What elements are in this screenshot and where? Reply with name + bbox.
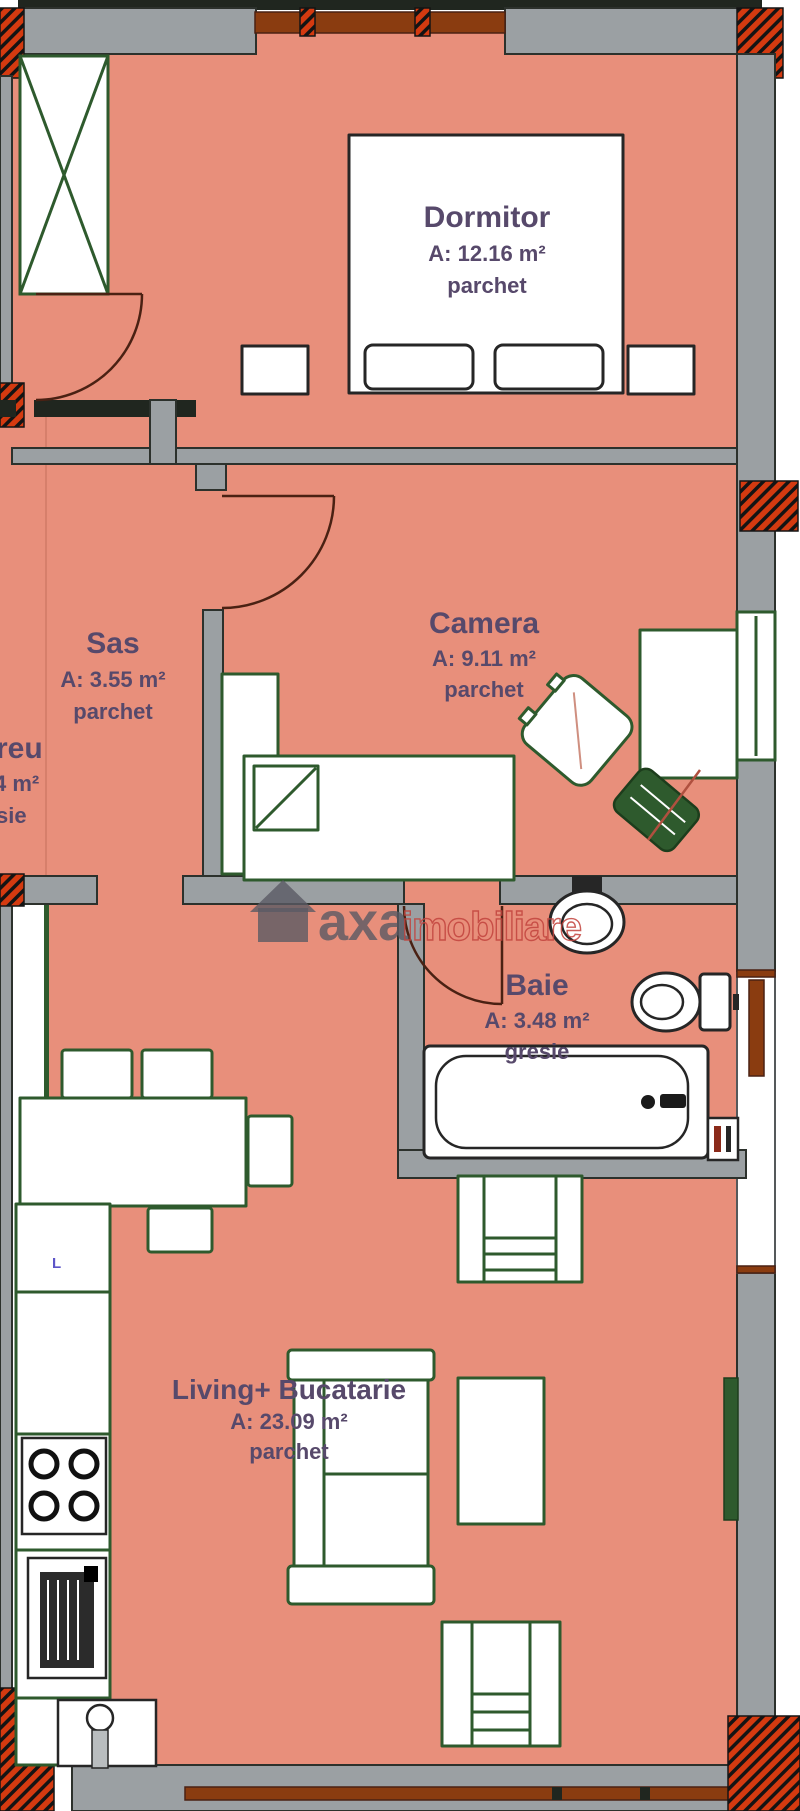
window-baie-sill-top: [737, 970, 775, 977]
wall-pier-camera-door: [196, 464, 226, 490]
toilet-tank: [700, 974, 730, 1030]
nightstand-right: [628, 346, 694, 394]
baie-name: Baie: [505, 969, 568, 1002]
bathtub-drain: [641, 1095, 655, 1109]
sofa-cushion-2: [324, 1474, 428, 1566]
partial-room-floor: sie: [0, 803, 27, 828]
dining-chair-right: [248, 1116, 292, 1186]
dining-chair-top-2: [142, 1050, 212, 1098]
chair3-arm-left: [458, 1176, 484, 1282]
kitchen-marker-label: L: [52, 1255, 61, 1272]
dining-table: [20, 1098, 246, 1206]
brick-corner-bottom-right: [728, 1716, 800, 1811]
brick-pier-1: [300, 8, 315, 36]
washer-mark-1: [714, 1126, 721, 1152]
partial-room-name: reu: [0, 732, 43, 765]
heater-knob: [84, 1566, 98, 1582]
right-wall: [737, 54, 775, 1765]
chair3-seat: [484, 1176, 556, 1282]
sofa-back: [294, 1380, 324, 1566]
dormitor-floor: parchet: [447, 273, 527, 298]
living-area: A: 23.09 m²: [230, 1409, 347, 1434]
coffee-table: [458, 1378, 544, 1524]
dining-chair-bottom: [148, 1208, 212, 1252]
terrace-strip-bottom: [185, 1787, 733, 1800]
washer-box: [708, 1118, 738, 1160]
bottom-strip-tick-1: [552, 1787, 562, 1800]
chair3-arm-right: [556, 1176, 582, 1282]
top-wall-left: [22, 8, 256, 54]
wall-sas-camera-divider: [203, 610, 223, 888]
living-floor: parchet: [249, 1439, 329, 1464]
armchair2-seat: [472, 1622, 530, 1746]
toilet-wall-tick: [733, 994, 739, 1010]
washer-mark-2: [726, 1126, 731, 1152]
baie-floor: gresie: [505, 1039, 570, 1064]
chair-by-bath-wall: [458, 1176, 582, 1282]
kitchen-sink-faucet-head: [87, 1705, 113, 1731]
armchair2-arm-right: [530, 1622, 560, 1746]
pillow-right: [495, 345, 603, 389]
living-name: Living+ Bucatarie: [172, 1374, 406, 1405]
top-wall-right: [505, 8, 739, 54]
wall-sas-top-left-stub: [0, 400, 16, 417]
wall-mid-right: [500, 876, 737, 904]
brick-left-mid-2: [0, 874, 24, 906]
watermark-house-body: [258, 908, 308, 942]
baie-area: A: 3.48 m²: [484, 1008, 589, 1033]
dormitor-area: A: 12.16 m²: [428, 241, 545, 266]
camera-name: Camera: [429, 607, 539, 640]
floor-plan: axa imobiliare Dormitor A: 12.16 m² parc…: [0, 0, 800, 1811]
armchair2-arm-left: [442, 1622, 472, 1746]
wall-connector: [150, 400, 176, 464]
wall-dormitor-bottom: [12, 448, 737, 464]
sas-name: Sas: [86, 627, 139, 660]
sas-floor: parchet: [73, 699, 153, 724]
camera-area: A: 9.11 m²: [432, 646, 536, 671]
burner-1: [31, 1451, 57, 1477]
bottom-strip-tick-2: [640, 1787, 650, 1800]
kitchen-sink-faucet-stem: [92, 1730, 108, 1768]
sofa-armrest-bottom: [288, 1566, 434, 1604]
pillow-left: [365, 345, 473, 389]
armchair-bottom: [442, 1622, 560, 1746]
sas-area: A: 3.55 m²: [60, 667, 165, 692]
watermark-word: imobiliare: [402, 905, 581, 949]
burner-2: [71, 1451, 97, 1477]
dining-chair-top-1: [62, 1050, 132, 1098]
nightstand-left: [242, 346, 308, 394]
window-baie-sill-bottom: [737, 1266, 775, 1273]
left-wall-upper: [0, 76, 12, 402]
burner-3: [31, 1493, 57, 1519]
dormitor-name: Dormitor: [424, 201, 551, 234]
camera-floor: parchet: [444, 677, 524, 702]
radiator-right: [724, 1378, 738, 1520]
burner-4: [71, 1493, 97, 1519]
window-baie-frame: [749, 980, 764, 1076]
left-wall-lower: [0, 904, 12, 1765]
partial-room-area: 4 m²: [0, 771, 39, 796]
desk: [640, 630, 737, 778]
terrace-strip-top: [255, 12, 505, 33]
watermark-brand: axa: [318, 892, 409, 952]
shaft: [20, 56, 108, 294]
brick-right-mid: [740, 481, 798, 531]
floor-plan-svg: axa imobiliare Dormitor A: 12.16 m² parc…: [0, 0, 800, 1811]
bathtub-faucet: [660, 1094, 686, 1108]
brick-pier-2: [415, 8, 430, 36]
